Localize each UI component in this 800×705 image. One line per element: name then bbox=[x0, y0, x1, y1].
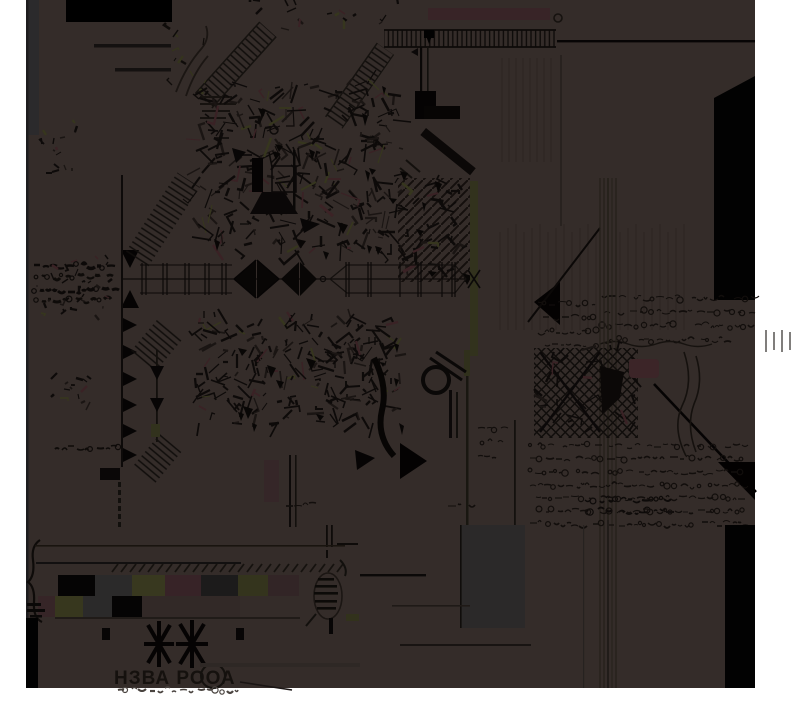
svg-text:НЗВА РООА: НЗВА РООА bbox=[114, 668, 236, 689]
